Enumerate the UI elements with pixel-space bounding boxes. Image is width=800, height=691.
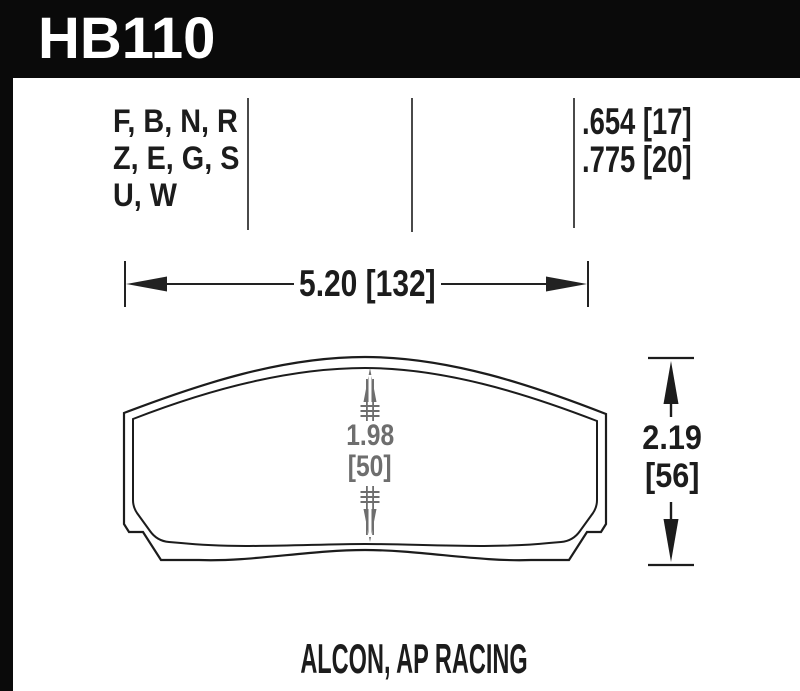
overall-height-metric: [56]: [645, 457, 699, 495]
arrowhead-down-icon: [664, 519, 679, 562]
pad-thickness-values: .654 [17] .775 [20]: [582, 103, 692, 179]
thickness-line: .775 [20]: [582, 141, 692, 179]
compound-codes-line: U, W: [113, 177, 239, 214]
center-height-value: 1.98: [346, 420, 394, 451]
compound-codes: F, B, N, R Z, E, G, S U, W: [113, 103, 239, 214]
center-height-metric: [50]: [348, 451, 392, 482]
width-dimension-label: 5.20 [132]: [167, 265, 567, 303]
compound-codes-line: Z, E, G, S: [113, 140, 239, 177]
overall-height-dimension-label: 2.19 [56]: [472, 419, 800, 495]
arrowhead-left-icon: [126, 277, 167, 292]
brake-pad-spec-sheet: HB110: [0, 0, 800, 691]
thickness-line: .654 [17]: [582, 103, 692, 141]
compound-codes-line: F, B, N, R: [113, 103, 239, 140]
arrowhead-up-icon: [664, 361, 679, 404]
overall-height-value: 2.19: [642, 419, 702, 457]
column-dividers: [248, 98, 574, 232]
applications-caption: ALCON, AP RACING: [28, 637, 800, 681]
